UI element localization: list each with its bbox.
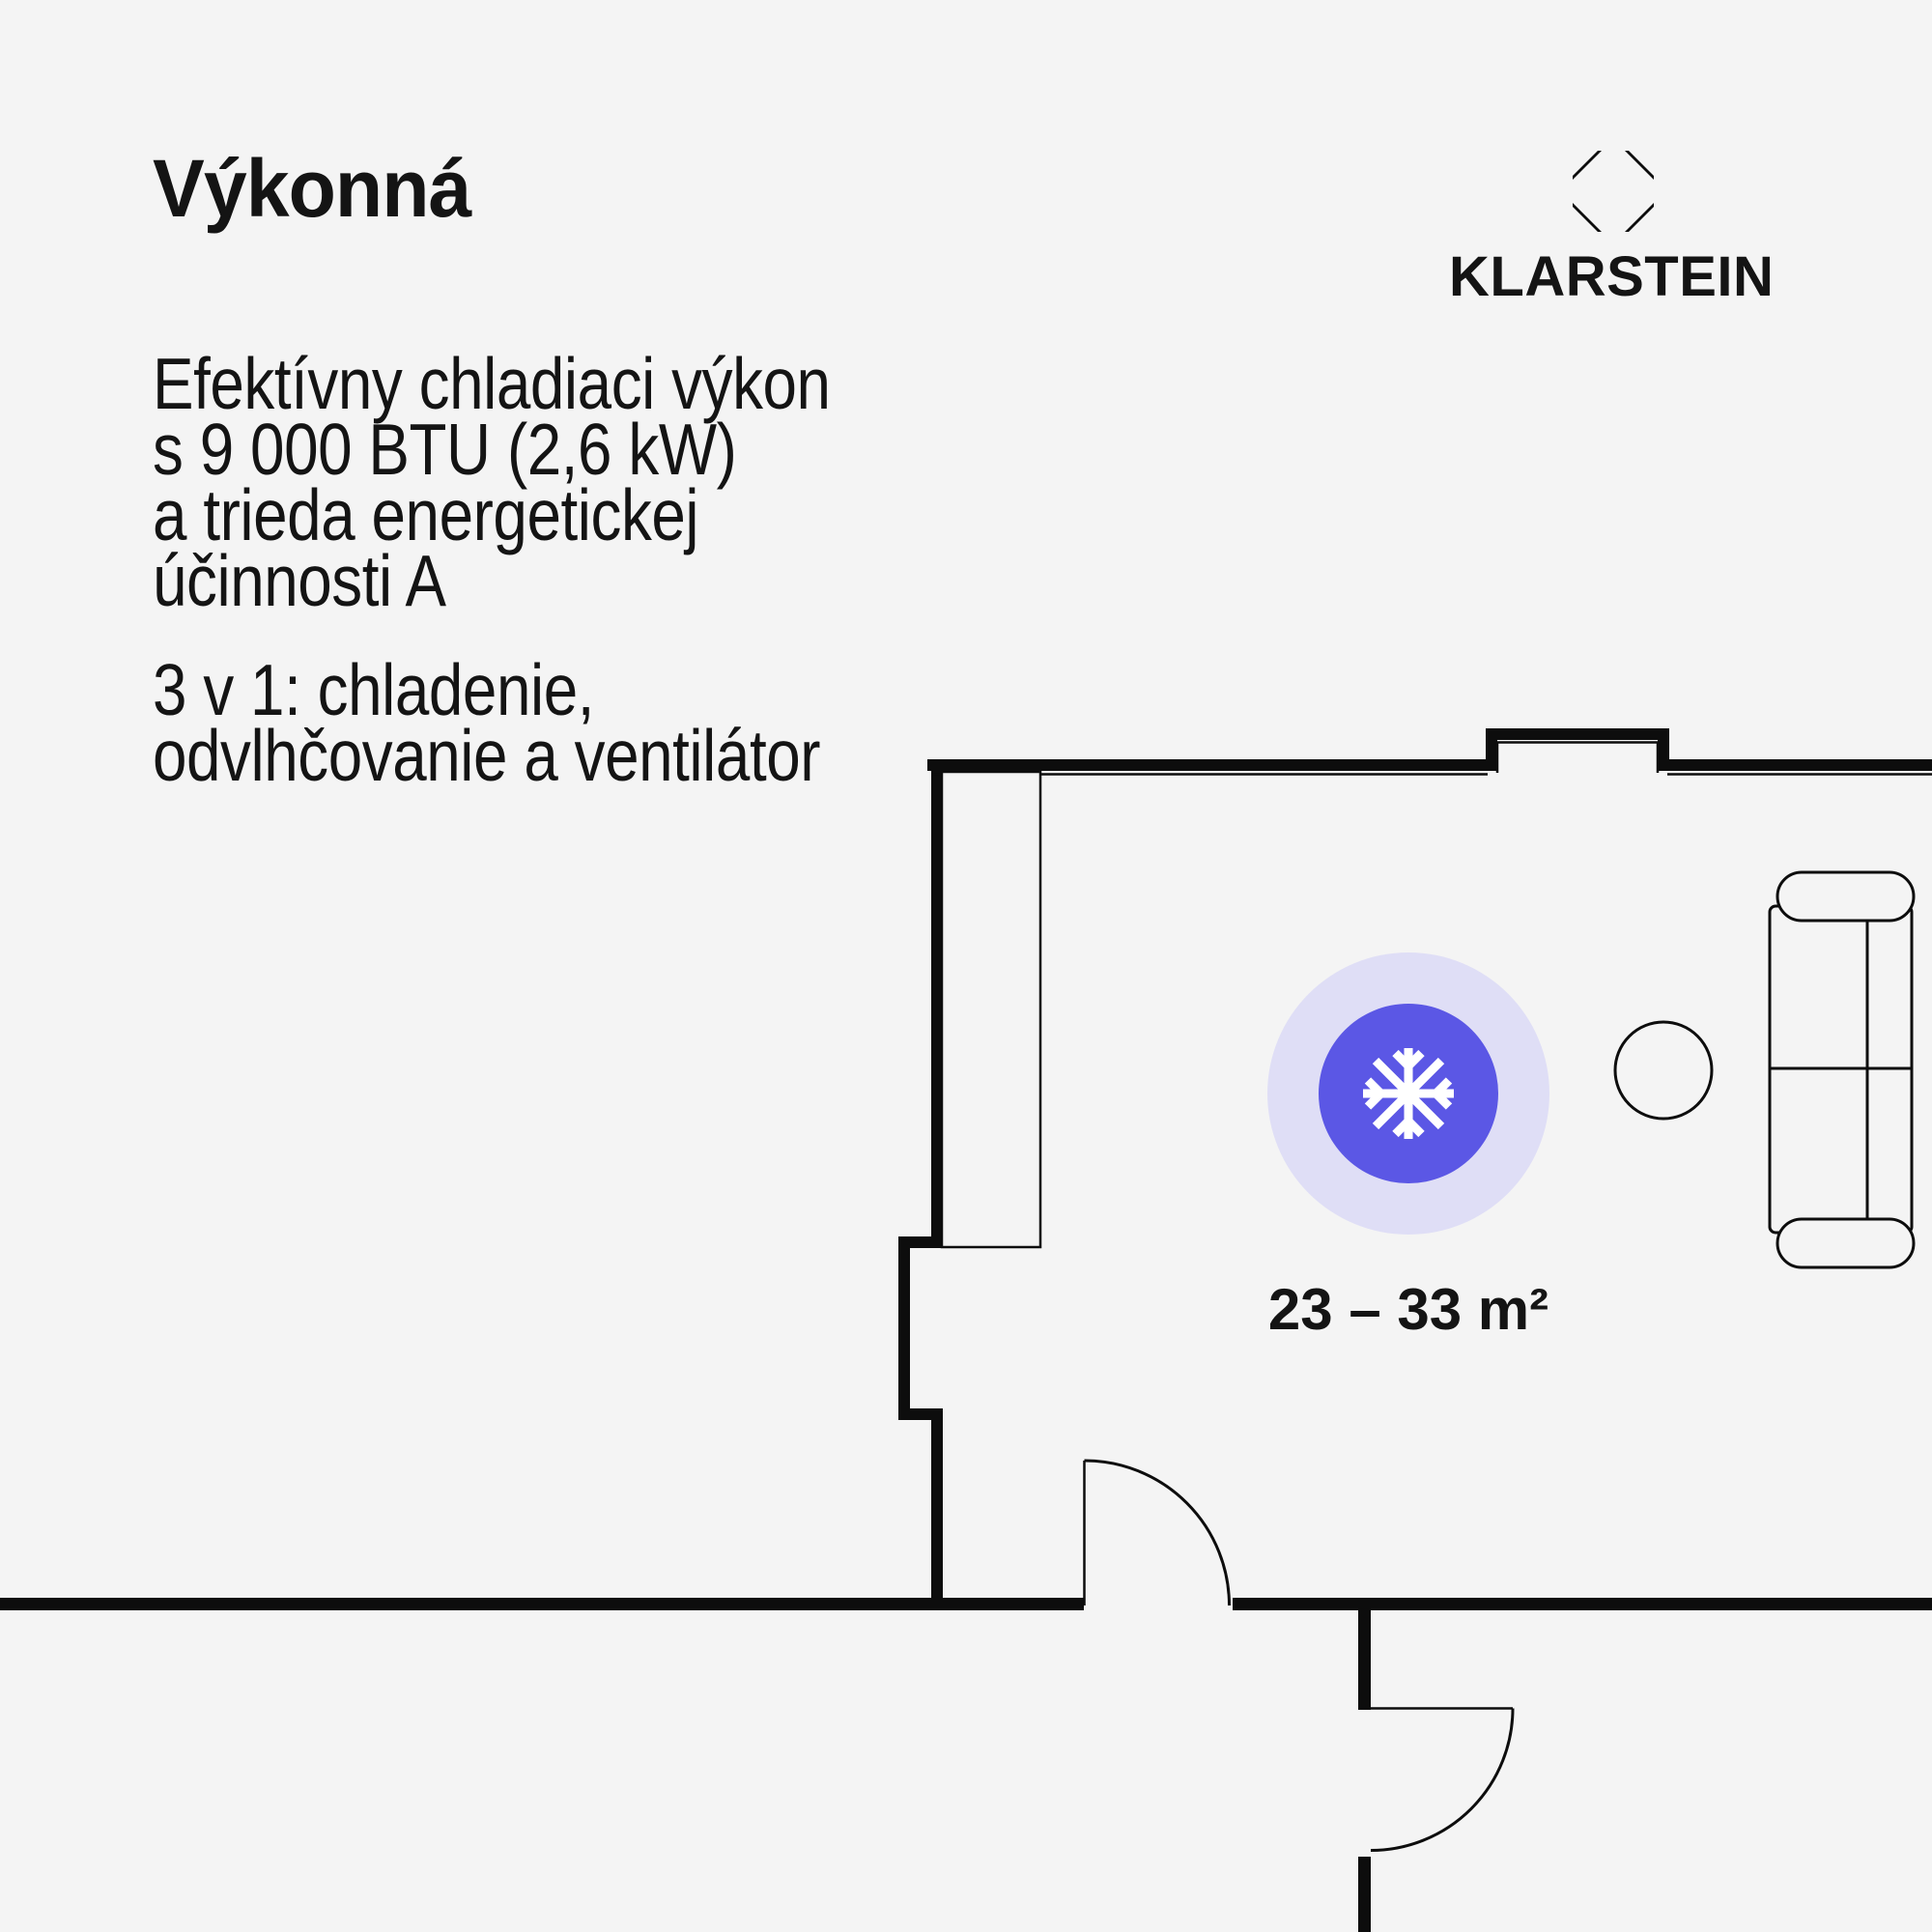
side-table (1615, 1022, 1712, 1119)
closet (942, 772, 1040, 1247)
door-swing-arc (1371, 1709, 1513, 1851)
cooling-badge (1267, 952, 1549, 1235)
sofa-armrest (1777, 872, 1914, 921)
door-lower (1371, 1709, 1513, 1851)
door-bottom (1085, 1461, 1230, 1605)
door-swing-arc (1085, 1461, 1230, 1605)
sofa-armrest (1777, 1219, 1914, 1267)
floorplan (0, 0, 1932, 1932)
coverage-area-label: 23 – 33 m² (1215, 1276, 1602, 1343)
snowflake-icon (1363, 1048, 1454, 1139)
sofa (1770, 872, 1914, 1267)
